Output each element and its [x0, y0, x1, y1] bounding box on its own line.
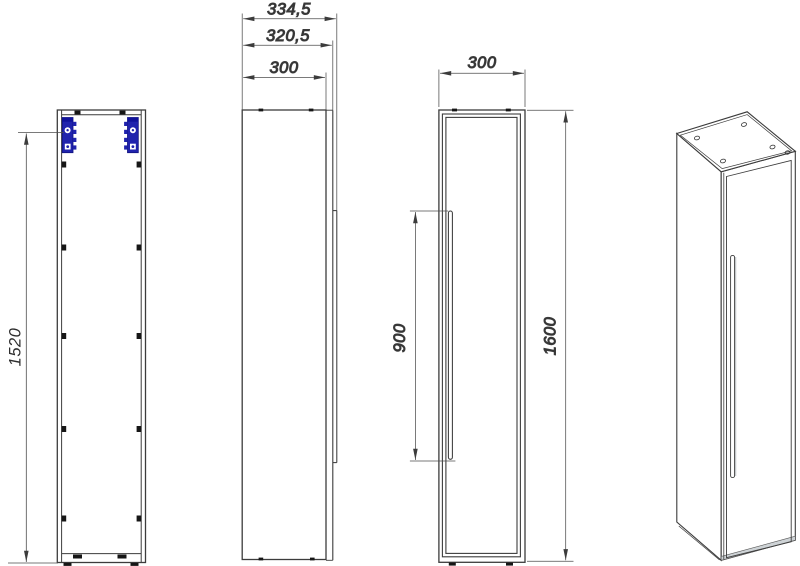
dim-label-door-width: 300	[467, 54, 496, 72]
drawing-svg: 1520 334,5 320,5 300	[0, 0, 800, 566]
dim-label-overall-height: 1600	[542, 316, 560, 355]
tick-marks	[449, 109, 513, 566]
carcass-outline	[57, 110, 145, 563]
wall-bracket-left	[62, 118, 76, 153]
dim-label-mounting-height: 1520	[7, 327, 25, 366]
side-carcass-outline	[242, 110, 326, 560]
view-front-door: 300 900 1600	[391, 54, 574, 566]
dim-label-handle-length: 900	[391, 323, 409, 352]
tick-marks	[259, 109, 315, 561]
wall-bracket-right	[124, 118, 138, 153]
view-isometric	[677, 112, 796, 561]
door-handle-groove	[448, 211, 452, 459]
view-side: 334,5 320,5 300	[242, 1, 337, 561]
view-front-carcass: 1520	[7, 110, 146, 566]
dimension-width-300	[439, 70, 525, 108]
iso-handle-groove	[731, 255, 735, 477]
door-edge-inner	[446, 117, 517, 553]
handle-profile	[333, 211, 337, 463]
dim-label-depth-with-door: 320,5	[266, 27, 310, 45]
dim-label-overall-depth: 334,5	[267, 1, 311, 19]
technical-drawing-canvas: 1520 334,5 320,5 300	[0, 0, 800, 566]
iso-left-face	[677, 134, 721, 561]
dowel-marks	[62, 111, 142, 566]
door-edge-outer	[442, 114, 520, 557]
dim-label-carcass-depth: 300	[269, 59, 298, 77]
